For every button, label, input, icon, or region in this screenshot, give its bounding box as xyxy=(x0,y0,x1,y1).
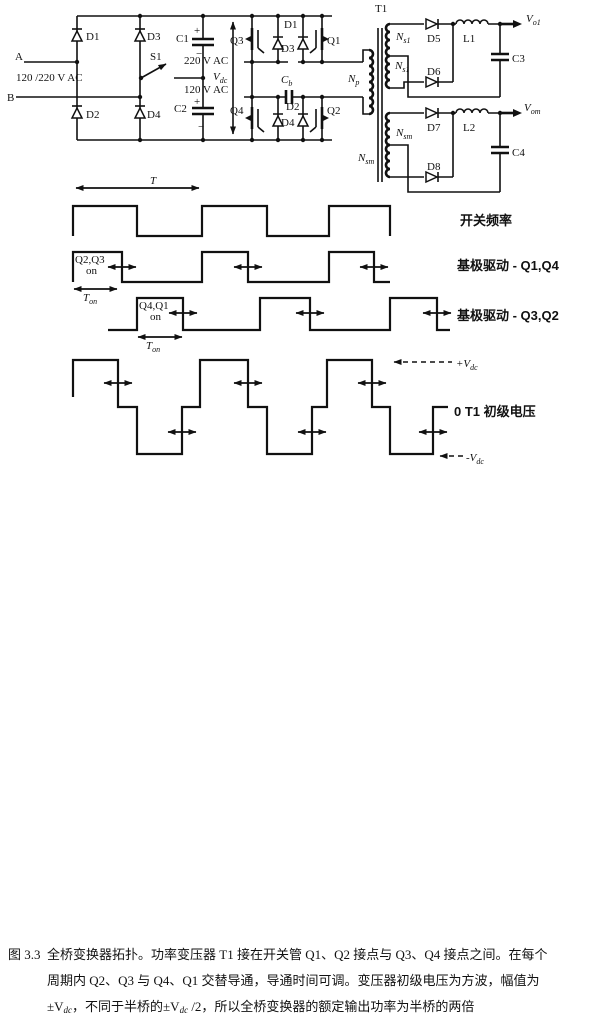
bridge-d1-label: D1 xyxy=(284,19,297,31)
c2-label: C2 xyxy=(174,103,187,115)
nsm-lower-label: Nsm xyxy=(357,152,374,166)
c1-label: C1 xyxy=(176,33,189,45)
capacitor-c3-icon xyxy=(491,54,509,60)
mosfet-q4-icon xyxy=(245,97,264,140)
c1-plus-sign: + xyxy=(194,25,200,37)
waveform-switching-frequency: T 开关频率 xyxy=(73,175,512,236)
cb-label: Cb xyxy=(281,74,292,88)
c3-label: C3 xyxy=(512,53,525,65)
secondary-2-winding-icon xyxy=(386,113,390,177)
vom-arrow-icon xyxy=(513,109,522,117)
t1-label: T1 xyxy=(375,3,387,15)
diode-d7-icon xyxy=(426,108,438,118)
mosfet-q2-icon xyxy=(310,97,329,140)
inductor-l2-icon xyxy=(456,109,500,113)
d7-label: D7 xyxy=(427,122,441,134)
primary-winding-icon xyxy=(369,50,373,114)
caption-line-2: 周期内 Q2、Q3 与 Q4、Q1 交替导通，导通时间可调。变压器初级电压为方波… xyxy=(47,968,540,994)
diode-d8-icon xyxy=(426,172,438,182)
diode-d4-icon xyxy=(135,106,145,118)
d8-label: D8 xyxy=(427,161,441,173)
scanned-book-page: { "circuit": { "input": { "terminal_a": … xyxy=(0,0,605,549)
ton-label-2: Ton xyxy=(146,340,160,354)
c2-voltage-label: 120 V AC xyxy=(184,84,228,96)
d4-label: D4 xyxy=(147,109,161,121)
ton-label-1: Ton xyxy=(83,292,97,306)
vo1-label: Vo1 xyxy=(526,13,541,27)
diode-d5-icon xyxy=(426,19,438,29)
l1-label: L1 xyxy=(463,33,475,45)
q4q1-on-label2: on xyxy=(150,311,162,323)
vdc-label: Vdc xyxy=(213,71,228,85)
period-label: T xyxy=(150,175,157,187)
bridge-d4-label: D4 xyxy=(281,117,295,129)
body-diode-d2-icon xyxy=(298,97,308,140)
vom-label: Vom xyxy=(524,102,541,116)
secondary-1-winding-icon xyxy=(386,24,390,88)
minus-vdc-label: -Vdc xyxy=(466,452,484,466)
diode-d1-icon xyxy=(72,29,82,41)
q1-label: Q1 xyxy=(327,35,340,47)
q3-label: Q3 xyxy=(230,35,244,47)
waveform-primary-voltage: +Vdc 0 T1 初级电压 -Vdc xyxy=(73,358,536,466)
s1-label: S1 xyxy=(150,51,162,63)
plus-vdc-label: +Vdc xyxy=(456,358,478,372)
bridge-d2-label: D2 xyxy=(286,101,299,113)
circuit-schematic: A B 120 /220 V AC D1 D2 D3 D4 S1 C1 + − … xyxy=(7,3,541,192)
caption-line-3: ±Vdc，不同于半桥的±Vdc /2，所以全桥变换器的额定输出功率为半桥的两倍 xyxy=(47,994,474,1023)
switching-frequency-label: 开关频率 xyxy=(460,213,512,228)
vo1-arrow-icon xyxy=(513,20,522,28)
q2q3-on-label2: on xyxy=(86,265,98,277)
d1-label: D1 xyxy=(86,31,99,43)
terminal-a-label: A xyxy=(15,51,23,63)
d6-label: D6 xyxy=(427,66,441,78)
ac-input-rating-label: 120 /220 V AC xyxy=(16,72,83,84)
timing-waveforms: T 开关频率 Q2,Q3 on Ton 基极驱动 - Q1,Q4 Q4,Q1 o… xyxy=(73,175,560,466)
l2-label: L2 xyxy=(463,122,475,134)
d3-label: D3 xyxy=(147,31,161,43)
mosfet-q3-icon xyxy=(245,16,264,62)
c4-label: C4 xyxy=(512,147,525,159)
capacitor-c4-icon xyxy=(491,147,509,153)
nsm-upper-label: Nsm xyxy=(395,127,412,141)
inductor-l1-icon xyxy=(456,20,500,24)
ns1-lower-label: Ns1 xyxy=(394,60,409,74)
terminal-b-label: B xyxy=(7,92,14,104)
q2-label: Q2 xyxy=(327,105,340,117)
output-section-2: D7 D8 L2 C4 Vom xyxy=(426,102,541,192)
c1-voltage-label: 220 V AC xyxy=(184,55,228,67)
body-diode-d1-icon xyxy=(298,16,308,62)
ns1-upper-label: Ns1 xyxy=(395,31,410,45)
base-drive-q1q4-label: 基极驱动 - Q1,Q4 xyxy=(456,258,560,273)
waveform-drive-q4q1: Q4,Q1 on Ton 基极驱动 - Q3,Q2 xyxy=(108,298,559,354)
diode-d2-icon xyxy=(72,106,82,118)
caption-line-1: 全桥变换器拓扑。功率变压器 T1 接在开关管 Q1、Q2 接点与 Q3、Q4 接… xyxy=(47,942,548,968)
diode-d3-icon xyxy=(135,29,145,41)
bridge-d3-label: D3 xyxy=(281,43,295,55)
d2-label: D2 xyxy=(86,109,99,121)
base-drive-q3q2-label: 基极驱动 - Q3,Q2 xyxy=(456,308,559,323)
c2-plus-sign: + xyxy=(194,96,200,108)
c2-minus-sign: − xyxy=(198,121,204,133)
body-diode-d3-icon xyxy=(273,16,283,62)
output-section-1: D5 D6 L1 C3 Vo1 xyxy=(426,13,541,97)
full-bridge-converter-figure: A B 120 /220 V AC D1 D2 D3 D4 S1 C1 + − … xyxy=(0,0,605,470)
diode-d6-icon xyxy=(426,77,438,87)
transformer-t1: T1 Np Ns1 Ns1 Nsm Nsm xyxy=(347,3,500,192)
primary-voltage-label: 0 T1 初级电压 xyxy=(454,404,536,419)
d5-label: D5 xyxy=(427,33,441,45)
figure-number: 图 3.3 xyxy=(8,942,41,968)
q4-label: Q4 xyxy=(230,105,244,117)
np-label: Np xyxy=(347,73,359,87)
core-icon xyxy=(378,28,382,182)
